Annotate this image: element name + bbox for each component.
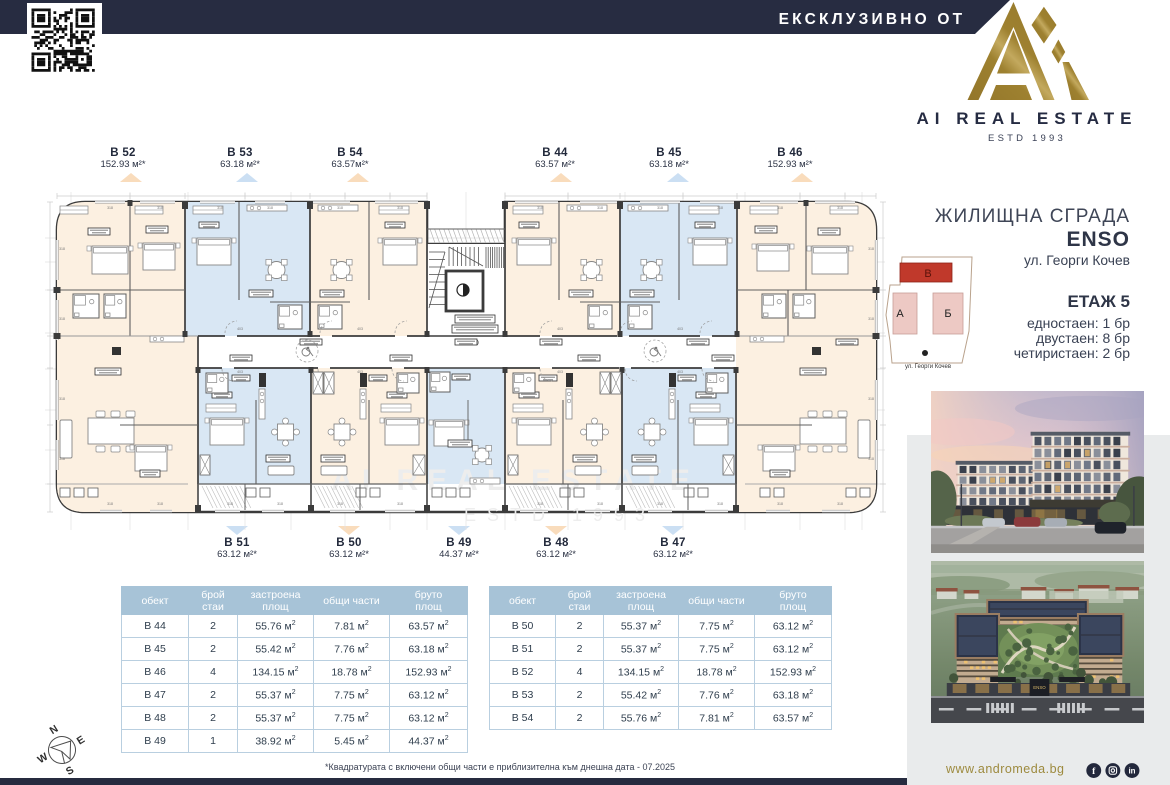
- svg-text:318: 318: [157, 206, 163, 210]
- svg-text:318: 318: [537, 502, 543, 506]
- svg-text:ENSO: ENSO: [1033, 685, 1046, 690]
- svg-text:403: 403: [237, 370, 243, 374]
- svg-text:AI REAL ESTATE: AI REAL ESTATE: [917, 109, 1138, 128]
- svg-text:318: 318: [227, 502, 233, 506]
- svg-text:318: 318: [597, 206, 603, 210]
- svg-text:403: 403: [557, 327, 563, 331]
- svg-text:318: 318: [777, 206, 783, 210]
- svg-text:318: 318: [777, 502, 783, 506]
- svg-text:318: 318: [59, 317, 65, 321]
- svg-text:318: 318: [397, 206, 403, 210]
- svg-text:403: 403: [557, 370, 563, 374]
- svg-text:403: 403: [357, 370, 363, 374]
- svg-text:318: 318: [837, 206, 843, 210]
- svg-text:318: 318: [397, 502, 403, 506]
- svg-text:ул. Георги Кочев: ул. Георги Кочев: [905, 364, 951, 370]
- svg-text:318: 318: [657, 206, 663, 210]
- svg-text:318: 318: [107, 206, 113, 210]
- svg-text:318: 318: [267, 206, 273, 210]
- svg-text:E: E: [75, 734, 87, 748]
- svg-text:318: 318: [597, 502, 603, 506]
- svg-text:318: 318: [59, 247, 65, 251]
- svg-text:ESTD 1993: ESTD 1993: [988, 133, 1066, 144]
- svg-text:318: 318: [657, 502, 663, 506]
- svg-text:318: 318: [217, 206, 223, 210]
- svg-text:318: 318: [337, 502, 343, 506]
- svg-text:318: 318: [157, 502, 163, 506]
- svg-text:318: 318: [337, 206, 343, 210]
- svg-text:318: 318: [59, 397, 65, 401]
- svg-text:318: 318: [717, 206, 723, 210]
- svg-text:ESTD 1993: ESTD 1993: [464, 505, 656, 525]
- svg-text:in: in: [1128, 767, 1135, 776]
- svg-text:318: 318: [537, 206, 543, 210]
- svg-text:А: А: [896, 308, 904, 320]
- svg-text:403: 403: [237, 327, 243, 331]
- svg-text:318: 318: [277, 502, 283, 506]
- svg-text:403: 403: [677, 327, 683, 331]
- svg-text:318: 318: [868, 457, 874, 461]
- svg-text:318: 318: [59, 457, 65, 461]
- svg-text:403: 403: [357, 327, 363, 331]
- svg-text:318: 318: [868, 397, 874, 401]
- svg-text:318: 318: [717, 502, 723, 506]
- svg-text:318: 318: [837, 502, 843, 506]
- svg-text:В: В: [924, 268, 931, 280]
- svg-text:Б: Б: [944, 308, 951, 320]
- svg-text:318: 318: [868, 317, 874, 321]
- svg-text:318: 318: [107, 502, 113, 506]
- svg-text:403: 403: [677, 370, 683, 374]
- svg-text:N: N: [48, 723, 61, 737]
- svg-text:318: 318: [868, 247, 874, 251]
